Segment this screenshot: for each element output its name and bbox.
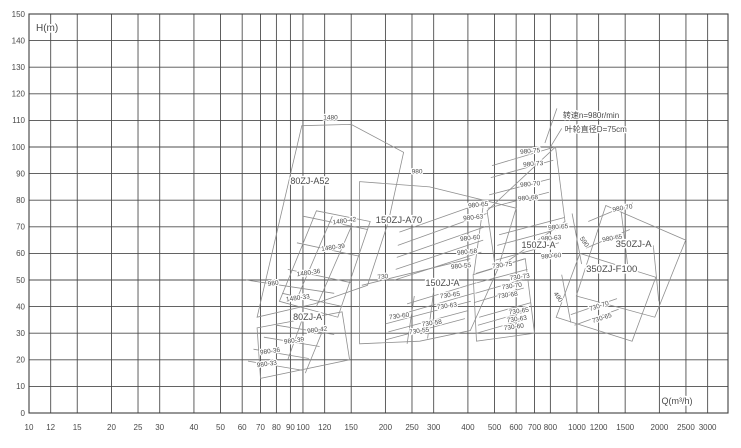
pump-model-label: 350ZJ-F100 [586,264,637,275]
pump-model-label: 80ZJ-A52 [290,176,329,186]
x-tick-label: 2000 [651,423,669,432]
x-tick-label: 70 [256,423,265,432]
curve-label: 980 [412,169,423,176]
y-tick-label: 0 [21,409,26,418]
pump-model-label: 150ZJ-A [425,278,459,288]
x-tick-label: 40 [189,423,198,432]
y-tick-label: 90 [16,169,25,178]
x-tick-label: 15 [73,423,82,432]
y-tick-label: 130 [12,63,26,72]
x-tick-label: 50 [216,423,225,432]
x-tick-label: 1000 [568,423,586,432]
x-tick-label: 1200 [590,423,608,432]
pump-model-label: 150ZJ-A70 [376,215,422,226]
x-tick-label: 300 [427,423,441,432]
x-tick-label: 600 [509,423,523,432]
pump-model-label: 150ZJ-A [521,240,555,250]
y-tick-label: 120 [12,90,26,99]
y-tick-label: 150 [12,10,26,19]
x-tick-label: 800 [544,423,558,432]
x-tick-label: 12 [46,423,55,432]
x-tick-label: 20 [107,423,116,432]
x-axis-title: Q(m³/h) [662,396,693,406]
y-tick-label: 110 [12,116,25,125]
y-tick-label: 40 [16,302,25,311]
x-tick-label: 150 [345,423,359,432]
x-tick-label: 700 [528,423,542,432]
x-tick-label: 500 [488,423,502,432]
x-tick-label: 80 [272,423,281,432]
x-tick-label: 250 [405,423,419,432]
annotation-impeller-text: 叶轮直径D=75cm [565,124,627,134]
y-tick-label: 20 [16,356,25,365]
x-tick-label: 25 [134,423,143,432]
y-axis-title: H(m) [36,23,58,34]
x-tick-label: 120 [318,423,332,432]
y-tick-label: 70 [16,223,25,232]
pump-model-label: 80ZJ-A [293,312,322,322]
x-tick-label: 200 [379,423,393,432]
pump-model-label: 350ZJ-A [616,239,653,250]
curve-label: 1480 [323,115,338,122]
y-tick-label: 10 [16,382,25,391]
x-tick-label: 400 [461,423,475,432]
curve-label: 730 [377,273,389,281]
x-tick-label: 30 [155,423,164,432]
x-tick-label: 1500 [616,423,634,432]
y-tick-label: 100 [12,143,26,152]
x-tick-label: 90 [286,423,295,432]
x-tick-label: 2500 [677,423,695,432]
x-tick-label: 100 [296,423,310,432]
y-tick-label: 60 [16,249,25,258]
pump-performance-spectrum-chart: 148080ZJ-A529801480-42150ZJ-A701480-3914… [0,0,741,448]
y-tick-label: 140 [12,36,26,45]
x-tick-label: 3000 [699,423,717,432]
x-tick-label: 60 [238,423,247,432]
annotation-speed-text: 转速n=980r/min [563,110,619,120]
y-tick-label: 30 [16,329,25,338]
chart-canvas: 148080ZJ-A529801480-42150ZJ-A701480-3914… [0,0,741,448]
y-tick-label: 80 [16,196,25,205]
x-tick-label: 10 [25,423,34,432]
y-tick-label: 50 [16,276,25,285]
